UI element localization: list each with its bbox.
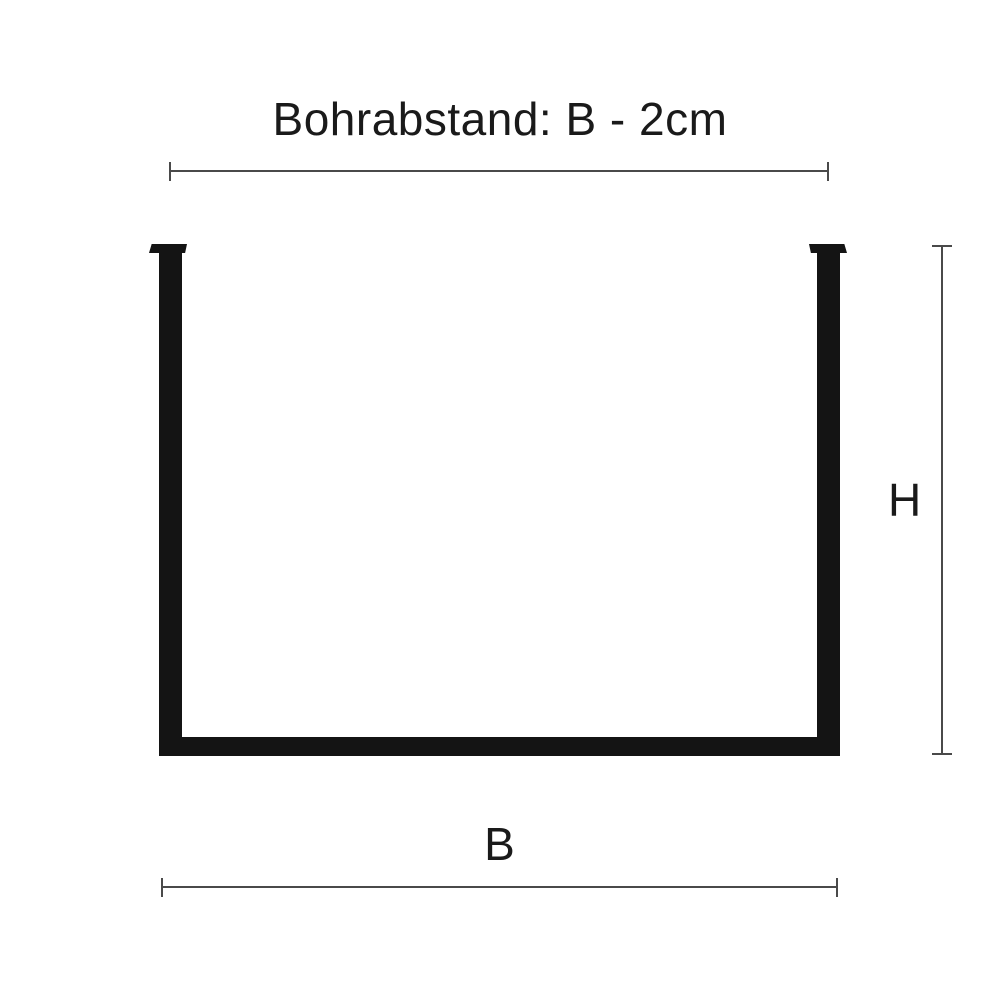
dimension-tick-right (836, 878, 838, 897)
diagram-canvas: Bohrabstand: B - 2cm H B (0, 0, 1000, 1000)
dimension-tick-top (932, 245, 952, 247)
width-dimension-line (162, 886, 837, 888)
dimension-line (941, 246, 943, 754)
drill-spacing-title: Bohrabstand: B - 2cm (0, 93, 1000, 145)
dimension-tick-left (169, 162, 171, 181)
dimension-tick-right (827, 162, 829, 181)
height-dimension-line (941, 246, 943, 754)
bracket-bottom-rail (159, 737, 840, 756)
dimension-line (170, 170, 828, 172)
dimension-tick-left (161, 878, 163, 897)
dimension-line (162, 886, 837, 888)
height-label: H (888, 474, 921, 526)
drill-spacing-dimension-line (170, 170, 828, 172)
dimension-tick-bottom (932, 753, 952, 755)
bracket-left-leg (159, 251, 182, 756)
bracket-right-leg (817, 251, 840, 756)
width-label: B (162, 818, 837, 870)
